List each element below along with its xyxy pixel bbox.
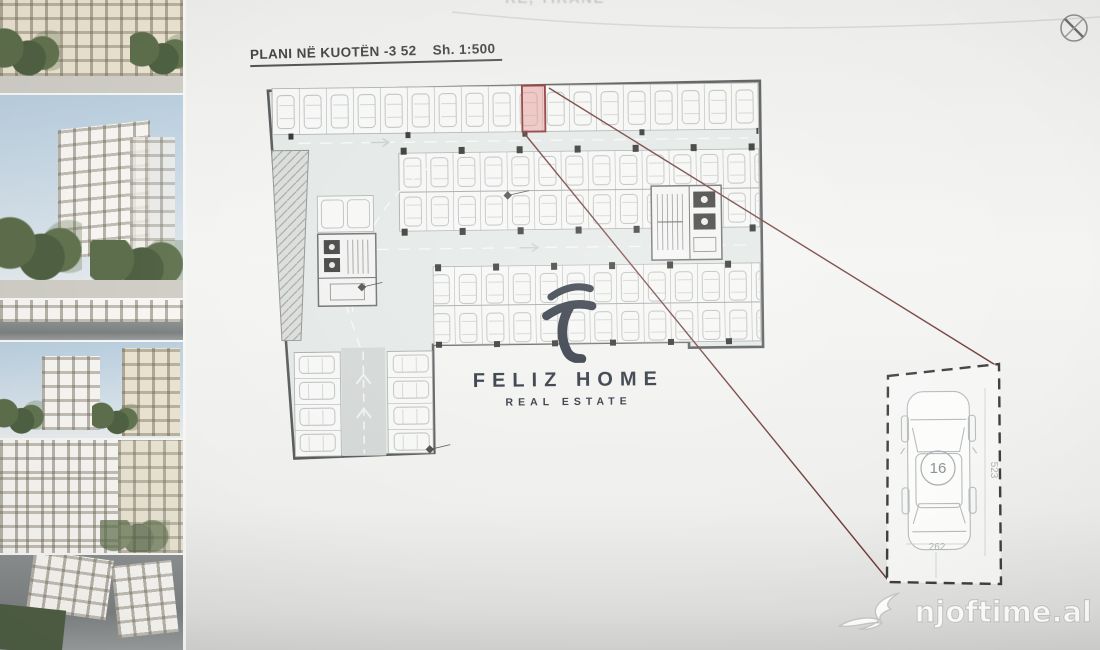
parking-wing-right <box>387 351 433 454</box>
feliz-home-logo-icon <box>536 281 599 364</box>
logo-name: FELIZ HOME <box>468 368 668 393</box>
njoftime-watermark: njoftime.al <box>837 590 1092 634</box>
wing-ramp <box>341 347 386 456</box>
stair-core-right <box>651 185 722 260</box>
page-curl-line <box>452 12 1100 28</box>
bird-icon <box>837 590 913 634</box>
watermark-text: njoftime.al <box>915 595 1092 629</box>
stall-number-label: 16 <box>930 460 947 477</box>
parking-row-top <box>272 83 759 135</box>
stall-width-dimension: 262 <box>929 542 946 553</box>
stall-length-dimension: 523 <box>988 462 999 479</box>
feliz-home-logo: FELIZ HOME REAL ESTATE <box>467 280 668 409</box>
parking-row-core-side <box>317 196 373 233</box>
parking-stall-detail: 16 523 262 <box>887 364 1001 584</box>
stair-core-left <box>318 234 377 307</box>
parking-wing-left <box>294 352 341 457</box>
logo-tagline: REAL ESTATE <box>469 395 669 409</box>
highlighted-parking-stall <box>522 85 546 131</box>
